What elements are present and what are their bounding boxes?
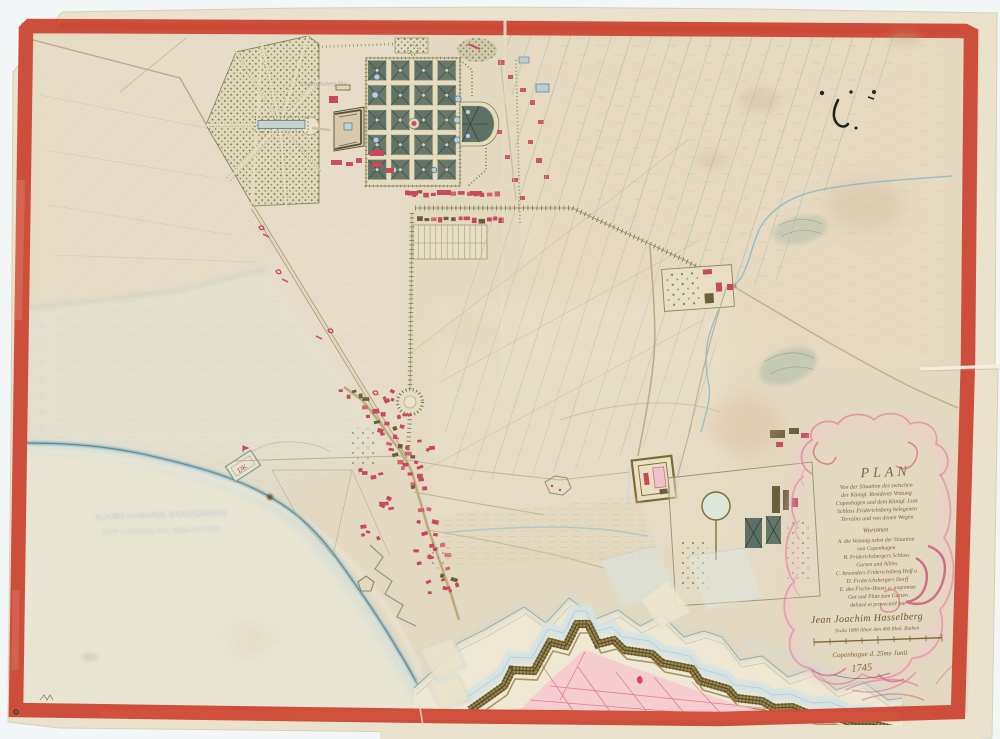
svg-text:Worinnen: Worinnen xyxy=(863,526,889,534)
svg-text:Friderichsberg Slot: Friderichsberg Slot xyxy=(299,81,347,88)
svg-text:1745: 1745 xyxy=(851,662,873,674)
